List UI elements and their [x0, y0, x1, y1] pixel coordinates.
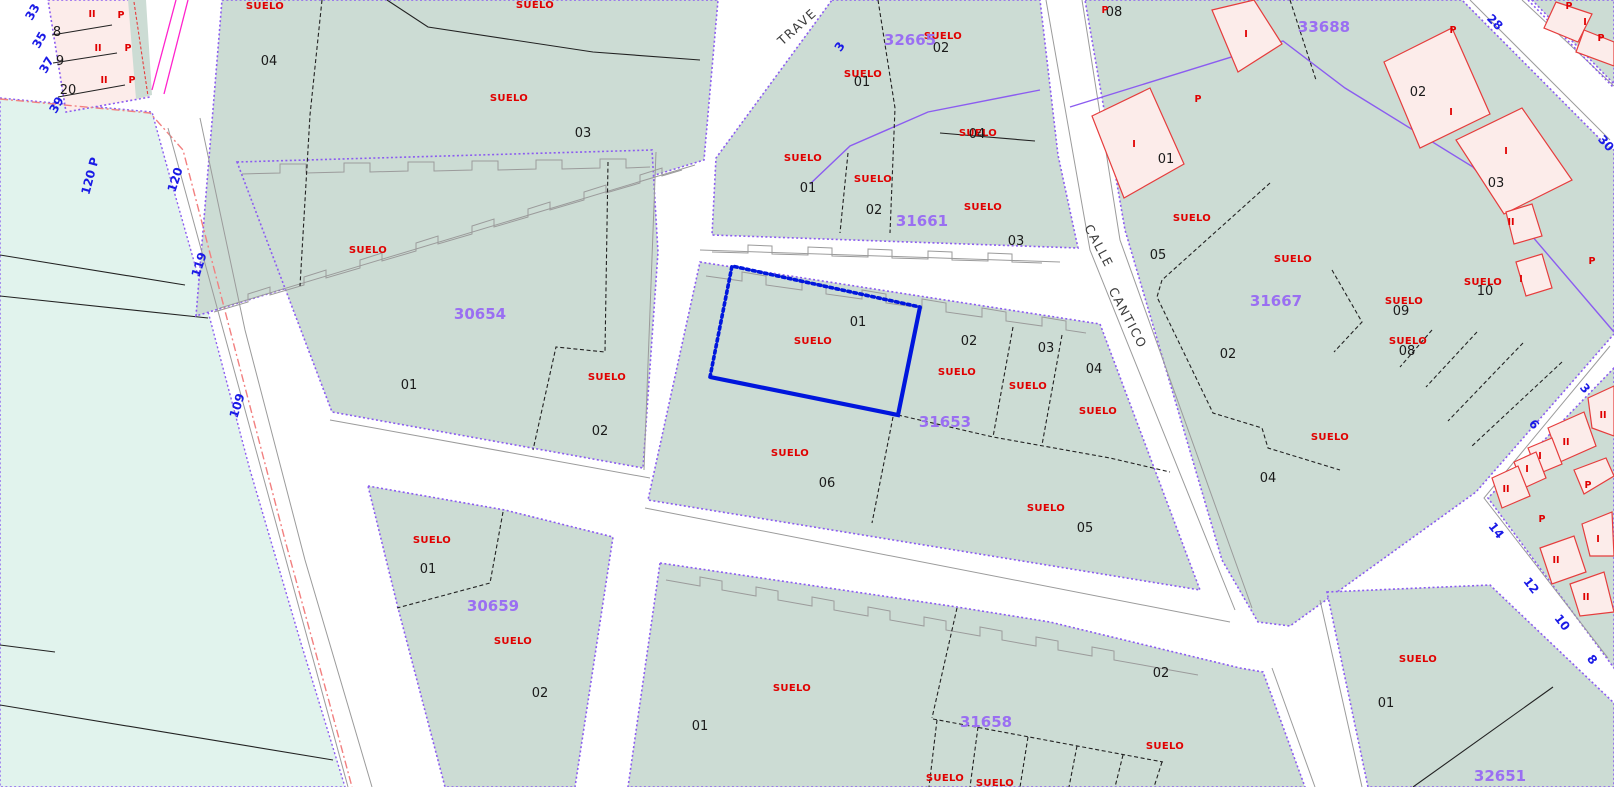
- parcel-number: 02: [592, 424, 609, 439]
- suelo-label: SUELO: [1311, 432, 1349, 443]
- parcel-number: 20: [60, 83, 77, 98]
- suelo-label: SUELO: [494, 636, 532, 647]
- building-code: II: [1562, 437, 1569, 448]
- building-code: P: [1102, 5, 1109, 16]
- building-code: I: [1504, 146, 1508, 157]
- parcel-number: 02: [866, 203, 883, 218]
- parcel-number: 04: [261, 54, 278, 69]
- building-code: P: [125, 43, 132, 54]
- parcel-number: 01: [1158, 152, 1175, 167]
- building-code: P: [1450, 25, 1457, 36]
- building-code: I: [1244, 29, 1248, 40]
- suelo-label: SUELO: [1274, 254, 1312, 265]
- parcel-number: 01: [800, 181, 817, 196]
- parcel-number: 03: [1008, 234, 1025, 249]
- suelo-label: SUELO: [246, 1, 284, 12]
- parcel-number: 03: [1488, 176, 1505, 191]
- parcel-number: 03: [575, 126, 592, 141]
- suelo-label: SUELO: [1399, 654, 1437, 665]
- boundary-line-magenta: [152, 0, 176, 90]
- parcel-number: 04: [969, 127, 986, 142]
- parcel-number: 01: [420, 562, 437, 577]
- block-30654[interactable]: [237, 150, 658, 468]
- parcel-number: 09: [1393, 304, 1410, 319]
- block-number: 32665: [884, 31, 936, 49]
- building-code: I: [1596, 534, 1600, 545]
- building-code: I: [1132, 139, 1136, 150]
- building-code: II: [94, 43, 101, 54]
- parcel-number: 04: [1260, 471, 1277, 486]
- building-code: II: [1502, 484, 1509, 495]
- parcel-number: 01: [401, 378, 418, 393]
- block-number: 31658: [960, 713, 1012, 731]
- parcel-number: 8: [53, 25, 61, 40]
- selected-parcel-number: 01: [850, 315, 867, 330]
- parcel-number: 05: [1077, 521, 1094, 536]
- block-number: 31667: [1250, 292, 1302, 310]
- suelo-label: SUELO: [413, 535, 451, 546]
- house-number: 10: [1551, 612, 1572, 634]
- cadastral-map-viewport[interactable]: SUELO SUELO SUELO SUELO SUELO SUELO SUEL…: [0, 0, 1614, 787]
- suelo-label: SUELO: [349, 245, 387, 256]
- building-code: I: [1583, 17, 1587, 28]
- building-code: I: [1449, 107, 1453, 118]
- building-code: P: [118, 10, 125, 21]
- suelo-label: SUELO: [1027, 503, 1065, 514]
- suelo-label: SUELO: [771, 448, 809, 459]
- parcel-number: 02: [1153, 666, 1170, 681]
- parcel-number: 02: [532, 686, 549, 701]
- parcel-number: 01: [1378, 696, 1395, 711]
- suelo-label: SUELO: [1009, 381, 1047, 392]
- parcel-number: 9: [56, 54, 64, 69]
- suelo-label: SUELO: [784, 153, 822, 164]
- suelo-label: SUELO: [1146, 741, 1184, 752]
- parcel-number: 04: [1086, 362, 1103, 377]
- block-number: 33688: [1298, 18, 1350, 36]
- house-number: 35: [29, 29, 49, 50]
- boundary-line-magenta2: [164, 0, 188, 94]
- street-name-calle: CALLE: [1081, 222, 1116, 270]
- suelo-label: SUELO: [926, 773, 964, 784]
- suelo-label: SUELO: [794, 336, 832, 347]
- block-31658[interactable]: [628, 563, 1305, 787]
- house-number: 12: [1520, 575, 1541, 597]
- parcel-number: 10: [1477, 284, 1494, 299]
- castellation-32665: [712, 245, 1042, 263]
- suelo-label: SUELO: [854, 174, 892, 185]
- house-number: 8: [1584, 652, 1600, 667]
- block-number: 30659: [467, 597, 519, 615]
- parcel-number: 03: [1038, 341, 1055, 356]
- parcel-number: 05: [1150, 248, 1167, 263]
- building-code: I: [1519, 274, 1523, 285]
- building-code: P: [1589, 256, 1596, 267]
- suelo-label: SUELO: [773, 683, 811, 694]
- suelo-label: SUELO: [516, 0, 554, 11]
- suelo-label: SUELO: [976, 778, 1014, 787]
- block-number: 32651: [1474, 767, 1526, 785]
- building-code: P: [1598, 33, 1605, 44]
- building-code: P: [1195, 94, 1202, 105]
- building-code: P: [129, 75, 136, 86]
- building-code: P: [1566, 1, 1573, 12]
- house-number: 37: [36, 54, 56, 75]
- building-code: II: [100, 75, 107, 86]
- building-code: P: [1585, 480, 1592, 491]
- block-number: 30654: [454, 305, 506, 323]
- suelo-label: SUELO: [490, 93, 528, 104]
- parcel-number: 02: [961, 334, 978, 349]
- parcel-number: 01: [692, 719, 709, 734]
- building-code: II: [1582, 592, 1589, 603]
- building-code: P: [1539, 514, 1546, 525]
- cadastral-map-canvas[interactable]: SUELO SUELO SUELO SUELO SUELO SUELO SUEL…: [0, 0, 1614, 787]
- suelo-label: SUELO: [964, 202, 1002, 213]
- parcel-number: 01: [854, 75, 871, 90]
- building-code: II: [1599, 410, 1606, 421]
- building-code: II: [1552, 555, 1559, 566]
- suelo-label: SUELO: [938, 367, 976, 378]
- parcel-number: 02: [1220, 347, 1237, 362]
- building-code: I: [1525, 464, 1529, 475]
- suelo-label: SUELO: [588, 372, 626, 383]
- parcel-number: 08: [1399, 344, 1416, 359]
- parcel-number: 06: [819, 476, 836, 491]
- block-number: 31653: [919, 413, 971, 431]
- block-32651[interactable]: [1327, 585, 1614, 787]
- block-30659[interactable]: [368, 486, 613, 787]
- building-code: II: [88, 9, 95, 20]
- building-code: II: [1507, 217, 1514, 228]
- suelo-label: SUELO: [1079, 406, 1117, 417]
- parcel-number: 02: [1410, 85, 1427, 100]
- suelo-label: SUELO: [1173, 213, 1211, 224]
- house-number: 33: [22, 1, 42, 22]
- building-code: I: [1538, 451, 1542, 462]
- block-number: 31661: [896, 212, 948, 230]
